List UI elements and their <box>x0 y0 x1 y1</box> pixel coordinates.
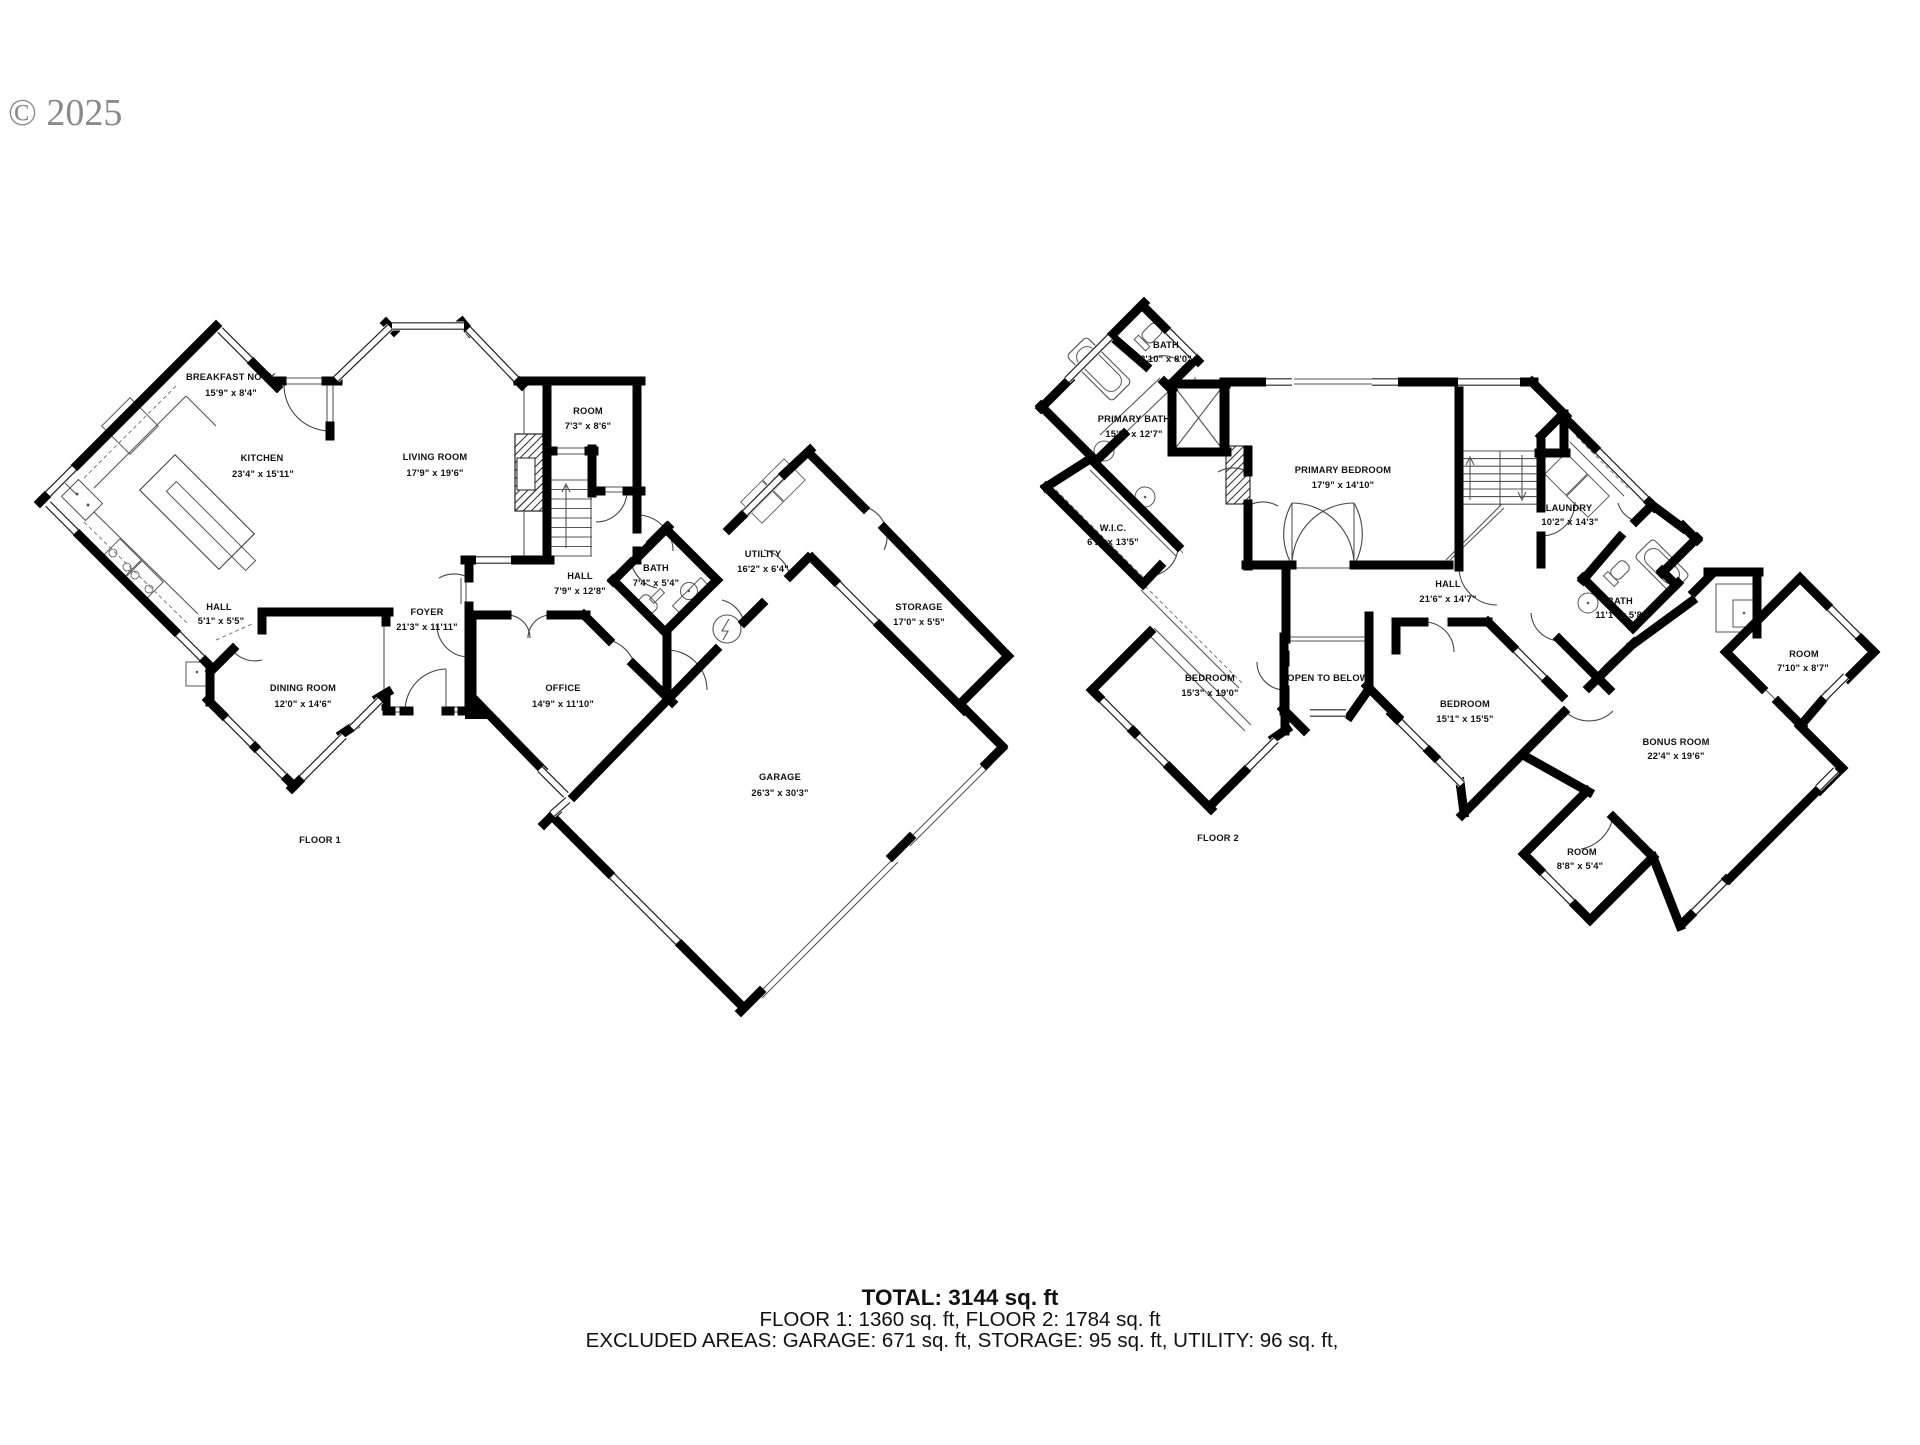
svg-text:23'4" x 15'11": 23'4" x 15'11" <box>232 469 294 479</box>
svg-text:ROOM: ROOM <box>1789 649 1819 659</box>
svg-text:BATH: BATH <box>1607 596 1633 606</box>
svg-text:BATH: BATH <box>1153 340 1179 350</box>
svg-text:5'1" x 5'5": 5'1" x 5'5" <box>198 616 244 626</box>
svg-text:15'3" x 12'7": 15'3" x 12'7" <box>1105 429 1162 439</box>
svg-text:BEDROOM: BEDROOM <box>1185 673 1235 683</box>
svg-text:6'2" x 13'5": 6'2" x 13'5" <box>1087 537 1139 547</box>
svg-text:W.I.C.: W.I.C. <box>1100 523 1127 533</box>
svg-text:UTILITY: UTILITY <box>745 549 782 559</box>
svg-text:17'9" x 14'10": 17'9" x 14'10" <box>1312 480 1375 490</box>
svg-text:12'0" x 14'6": 12'0" x 14'6" <box>274 699 331 709</box>
svg-text:HALL: HALL <box>206 602 232 612</box>
svg-text:DINING ROOM: DINING ROOM <box>270 683 336 693</box>
svg-text:16'2" x 6'4": 16'2" x 6'4" <box>737 564 789 574</box>
svg-text:15'3" x 19'0": 15'3" x 19'0" <box>1181 688 1238 698</box>
svg-text:7'10" x 8'7": 7'10" x 8'7" <box>1777 663 1829 673</box>
svg-text:FLOOR 1: 1360 sq. ft, FLOOR 2:: FLOOR 1: 1360 sq. ft, FLOOR 2: 1784 sq. … <box>759 1308 1160 1331</box>
svg-text:OFFICE: OFFICE <box>545 683 580 693</box>
svg-text:HALL: HALL <box>1435 579 1461 589</box>
svg-text:ROOM: ROOM <box>1567 847 1597 857</box>
svg-text:21'3" x 11'11": 21'3" x 11'11" <box>396 622 458 632</box>
svg-text:PRIMARY BEDROOM: PRIMARY BEDROOM <box>1295 465 1392 475</box>
svg-text:15'9" x 8'4": 15'9" x 8'4" <box>205 388 257 398</box>
svg-text:FLOOR 1: FLOOR 1 <box>299 835 341 845</box>
svg-text:14'9" x 11'10": 14'9" x 11'10" <box>532 699 594 709</box>
svg-text:BATH: BATH <box>643 563 669 573</box>
svg-text:7'3" x 8'6": 7'3" x 8'6" <box>565 421 611 431</box>
svg-text:FLOOR 2: FLOOR 2 <box>1197 833 1239 843</box>
svg-text:17'0" x 5'5": 17'0" x 5'5" <box>893 617 945 627</box>
svg-text:BREAKFAST NOOK: BREAKFAST NOOK <box>186 372 276 382</box>
svg-text:EXCLUDED AREAS: GARAGE: 671 sq: EXCLUDED AREAS: GARAGE: 671 sq. ft, STOR… <box>586 1329 1339 1352</box>
svg-text:PRIMARY BATH: PRIMARY BATH <box>1098 414 1171 424</box>
svg-text:TOTAL: 3144 sq. ft: TOTAL: 3144 sq. ft <box>862 1285 1059 1310</box>
svg-text:7'4" x 5'4": 7'4" x 5'4" <box>633 578 679 588</box>
svg-text:© 2025: © 2025 <box>8 92 122 134</box>
svg-text:26'3" x 30'3": 26'3" x 30'3" <box>751 788 808 798</box>
svg-text:GARAGE: GARAGE <box>759 772 801 782</box>
svg-text:BONUS ROOM: BONUS ROOM <box>1642 737 1709 747</box>
svg-text:OPEN TO BELOW: OPEN TO BELOW <box>1287 673 1368 683</box>
svg-text:15'1" x 15'5": 15'1" x 15'5" <box>1436 714 1493 724</box>
svg-text:LAUNDRY: LAUNDRY <box>1546 503 1593 513</box>
svg-text:LIVING ROOM: LIVING ROOM <box>403 452 468 462</box>
svg-text:10'2" x 14'3": 10'2" x 14'3" <box>1541 517 1598 527</box>
svg-text:HALL: HALL <box>567 571 593 581</box>
svg-text:2'10" x 8'0": 2'10" x 8'0" <box>1140 354 1192 364</box>
svg-text:KITCHEN: KITCHEN <box>241 453 284 463</box>
svg-text:FOYER: FOYER <box>410 607 443 617</box>
svg-text:8'8" x 5'4": 8'8" x 5'4" <box>1557 861 1603 871</box>
svg-text:BEDROOM: BEDROOM <box>1440 699 1490 709</box>
svg-text:17'9" x 19'6": 17'9" x 19'6" <box>406 468 463 478</box>
svg-text:21'6" x 14'7": 21'6" x 14'7" <box>1419 594 1476 604</box>
svg-text:7'9" x 12'8": 7'9" x 12'8" <box>554 586 606 596</box>
svg-text:ROOM: ROOM <box>573 406 603 416</box>
svg-text:11'1" x 5'8": 11'1" x 5'8" <box>1595 610 1646 620</box>
svg-text:STORAGE: STORAGE <box>895 602 942 612</box>
svg-text:22'4" x 19'6": 22'4" x 19'6" <box>1647 751 1704 761</box>
